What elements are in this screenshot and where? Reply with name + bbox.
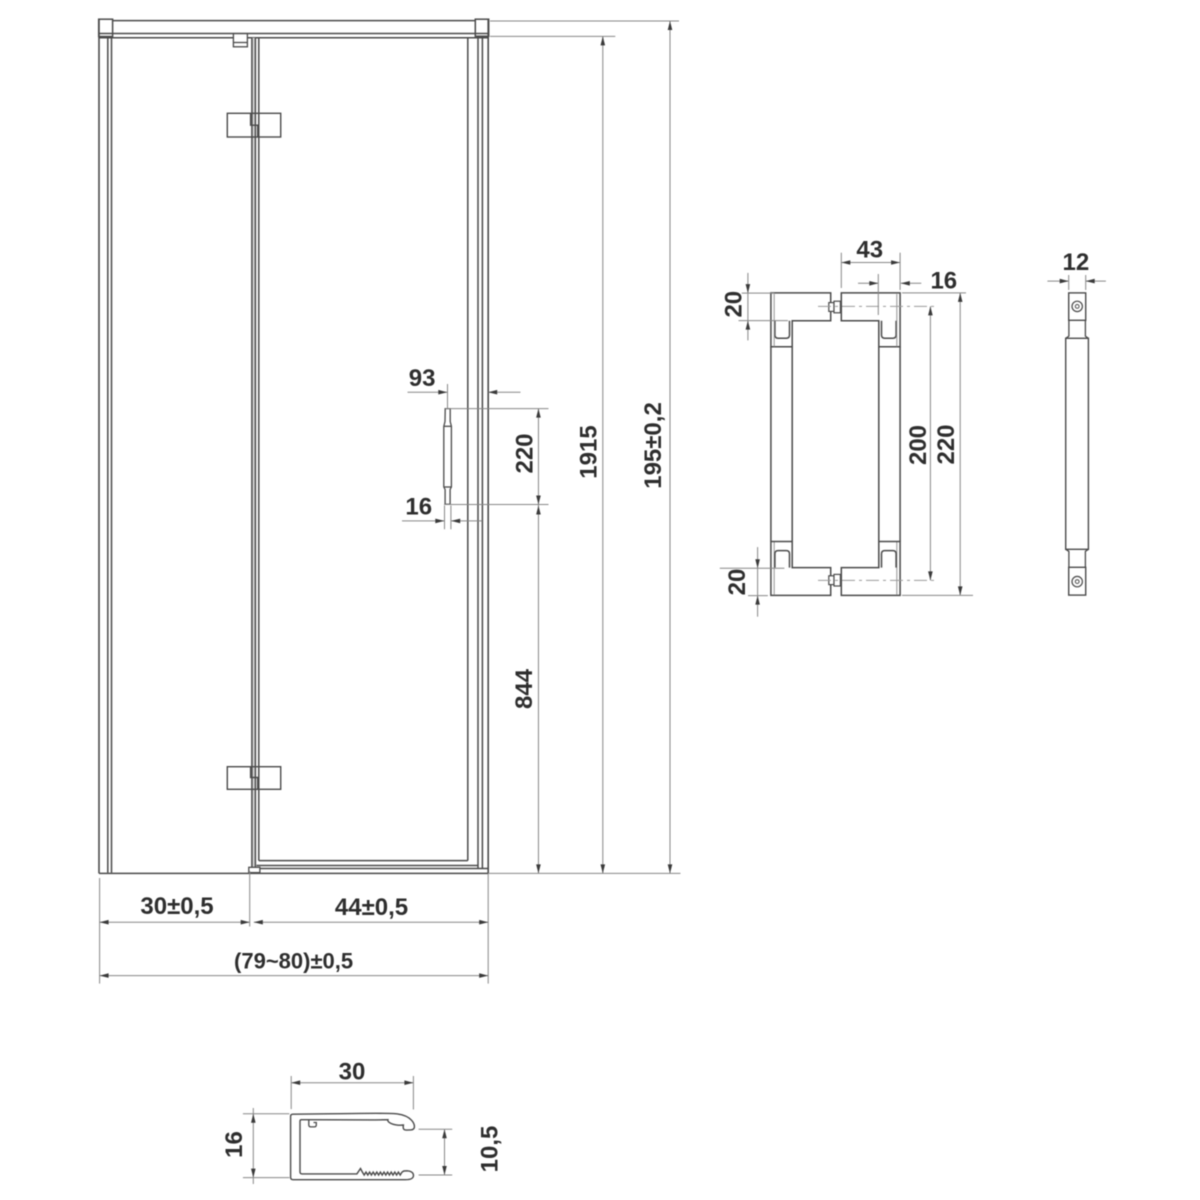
svg-text:16: 16: [221, 1131, 248, 1158]
svg-text:93: 93: [409, 365, 436, 392]
svg-text:10,5: 10,5: [476, 1126, 503, 1173]
svg-text:200: 200: [905, 425, 932, 465]
svg-text:220: 220: [511, 433, 538, 473]
svg-text:195±0,2: 195±0,2: [640, 402, 667, 489]
svg-text:44±0,5: 44±0,5: [335, 894, 408, 921]
svg-text:(79~80)±0,5: (79~80)±0,5: [234, 949, 353, 974]
svg-text:220: 220: [933, 424, 960, 464]
svg-text:16: 16: [930, 267, 957, 294]
svg-text:30±0,5: 30±0,5: [140, 893, 213, 920]
svg-text:16: 16: [405, 493, 432, 520]
svg-text:1915: 1915: [576, 425, 603, 478]
svg-text:844: 844: [511, 668, 538, 709]
svg-text:12: 12: [1063, 249, 1090, 276]
svg-text:20: 20: [724, 569, 751, 596]
svg-text:30: 30: [339, 1058, 366, 1085]
svg-text:43: 43: [856, 236, 883, 263]
svg-text:20: 20: [721, 291, 748, 318]
